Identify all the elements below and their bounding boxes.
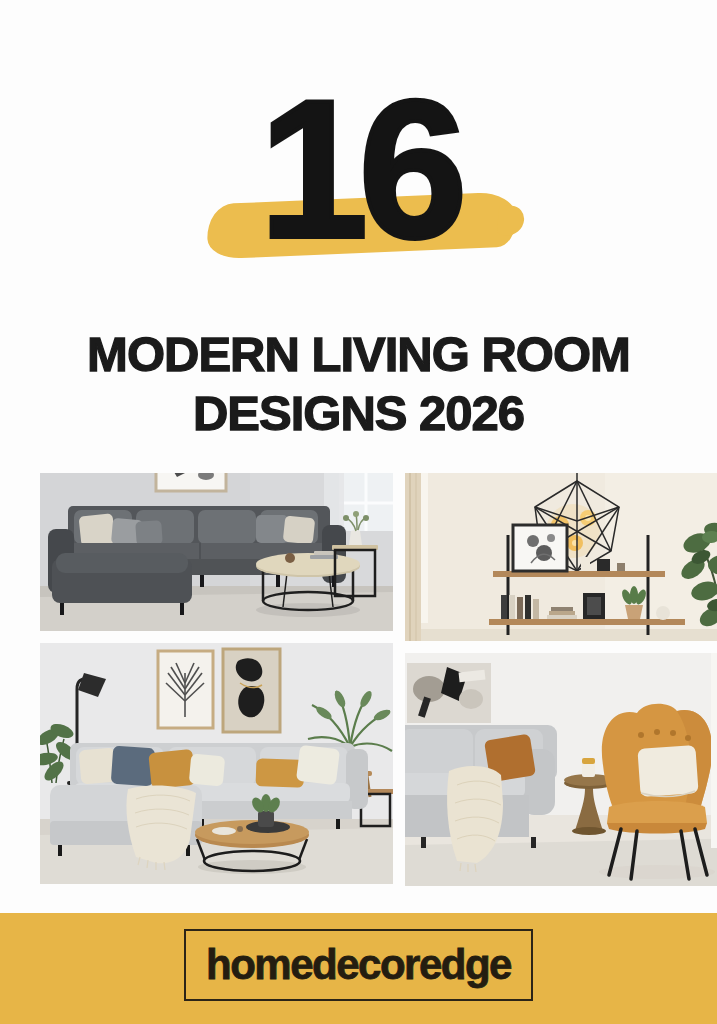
poster-title: MODERN LIVING ROOM DESIGNS 2026 bbox=[0, 325, 717, 443]
palm-leaf-art bbox=[158, 651, 213, 728]
pin-poster: 16 MODERN LIVING ROOM DESIGNS 2026 bbox=[0, 0, 717, 1024]
white-curtain bbox=[711, 653, 717, 865]
abstract-canvas-art bbox=[407, 663, 491, 723]
abstract-art bbox=[223, 649, 280, 732]
footer-band: homedecoredge bbox=[0, 913, 717, 1024]
design-count: 16 bbox=[0, 72, 717, 268]
photo-greige-sectional bbox=[40, 643, 393, 884]
photo-charcoal-sectional bbox=[40, 473, 393, 631]
title-line-2: DESIGNS 2026 bbox=[0, 384, 717, 443]
curtain bbox=[405, 473, 428, 641]
title-line-1: MODERN LIVING ROOM bbox=[0, 325, 717, 384]
photo-mustard-wingback-chair bbox=[405, 653, 717, 886]
brand-box: homedecoredge bbox=[184, 929, 533, 1001]
brand-name: homedecoredge bbox=[206, 941, 511, 988]
wall-art bbox=[156, 473, 226, 491]
photo-geometric-pendant-shelf bbox=[405, 473, 717, 641]
